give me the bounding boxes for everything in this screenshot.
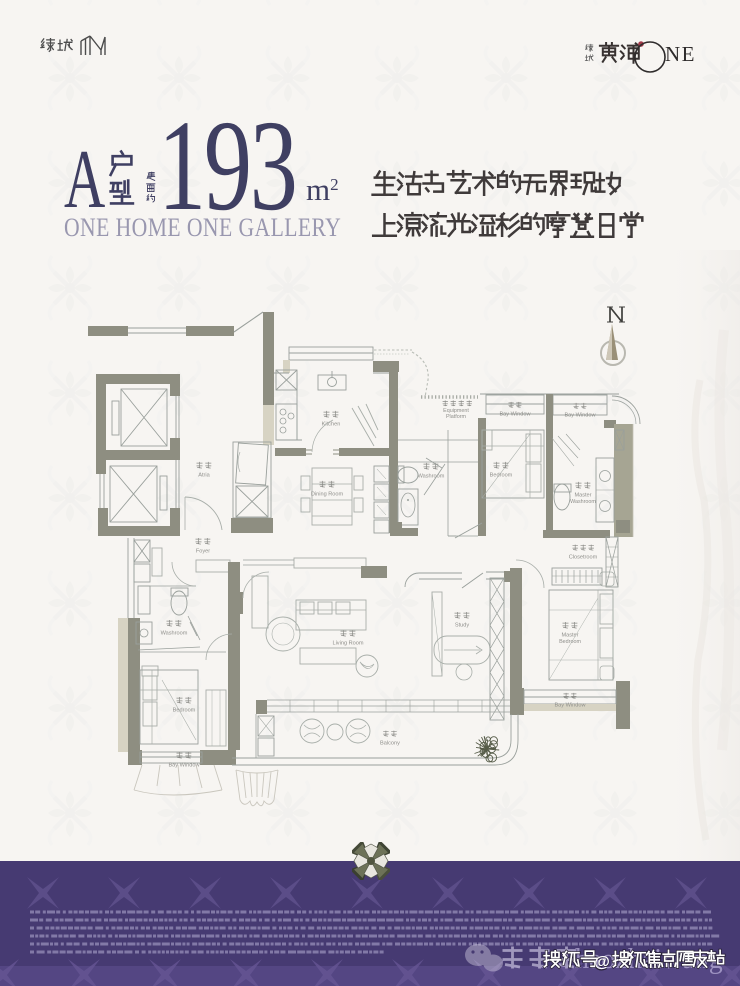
svg-text:Bay Window: Bay Window xyxy=(499,412,531,418)
svg-text:Master: Master xyxy=(561,633,578,639)
svg-text:Washroom: Washroom xyxy=(418,474,445,480)
svg-text:Bedroom: Bedroom xyxy=(490,473,513,479)
svg-text:Washroom: Washroom xyxy=(161,631,188,637)
svg-text:Dining Room: Dining Room xyxy=(311,492,344,498)
svg-text:Balcony: Balcony xyxy=(380,741,400,747)
svg-text:Platform: Platform xyxy=(446,414,467,420)
svg-text:Master: Master xyxy=(574,493,591,499)
svg-text:@: @ xyxy=(594,954,610,971)
svg-text:Study: Study xyxy=(455,623,470,629)
svg-text:Kitchen: Kitchen xyxy=(322,422,341,428)
svg-text:Foyer: Foyer xyxy=(196,549,210,555)
svg-text:Atria: Atria xyxy=(198,473,210,479)
svg-text:Closetroom: Closetroom xyxy=(569,555,598,561)
svg-text:Living Room: Living Room xyxy=(332,641,363,647)
svg-text:Bedroom: Bedroom xyxy=(173,708,196,714)
svg-text:Bay Window: Bay Window xyxy=(564,413,596,419)
svg-text:Bay Window: Bay Window xyxy=(554,703,586,709)
svg-text:Washroom: Washroom xyxy=(570,499,596,505)
